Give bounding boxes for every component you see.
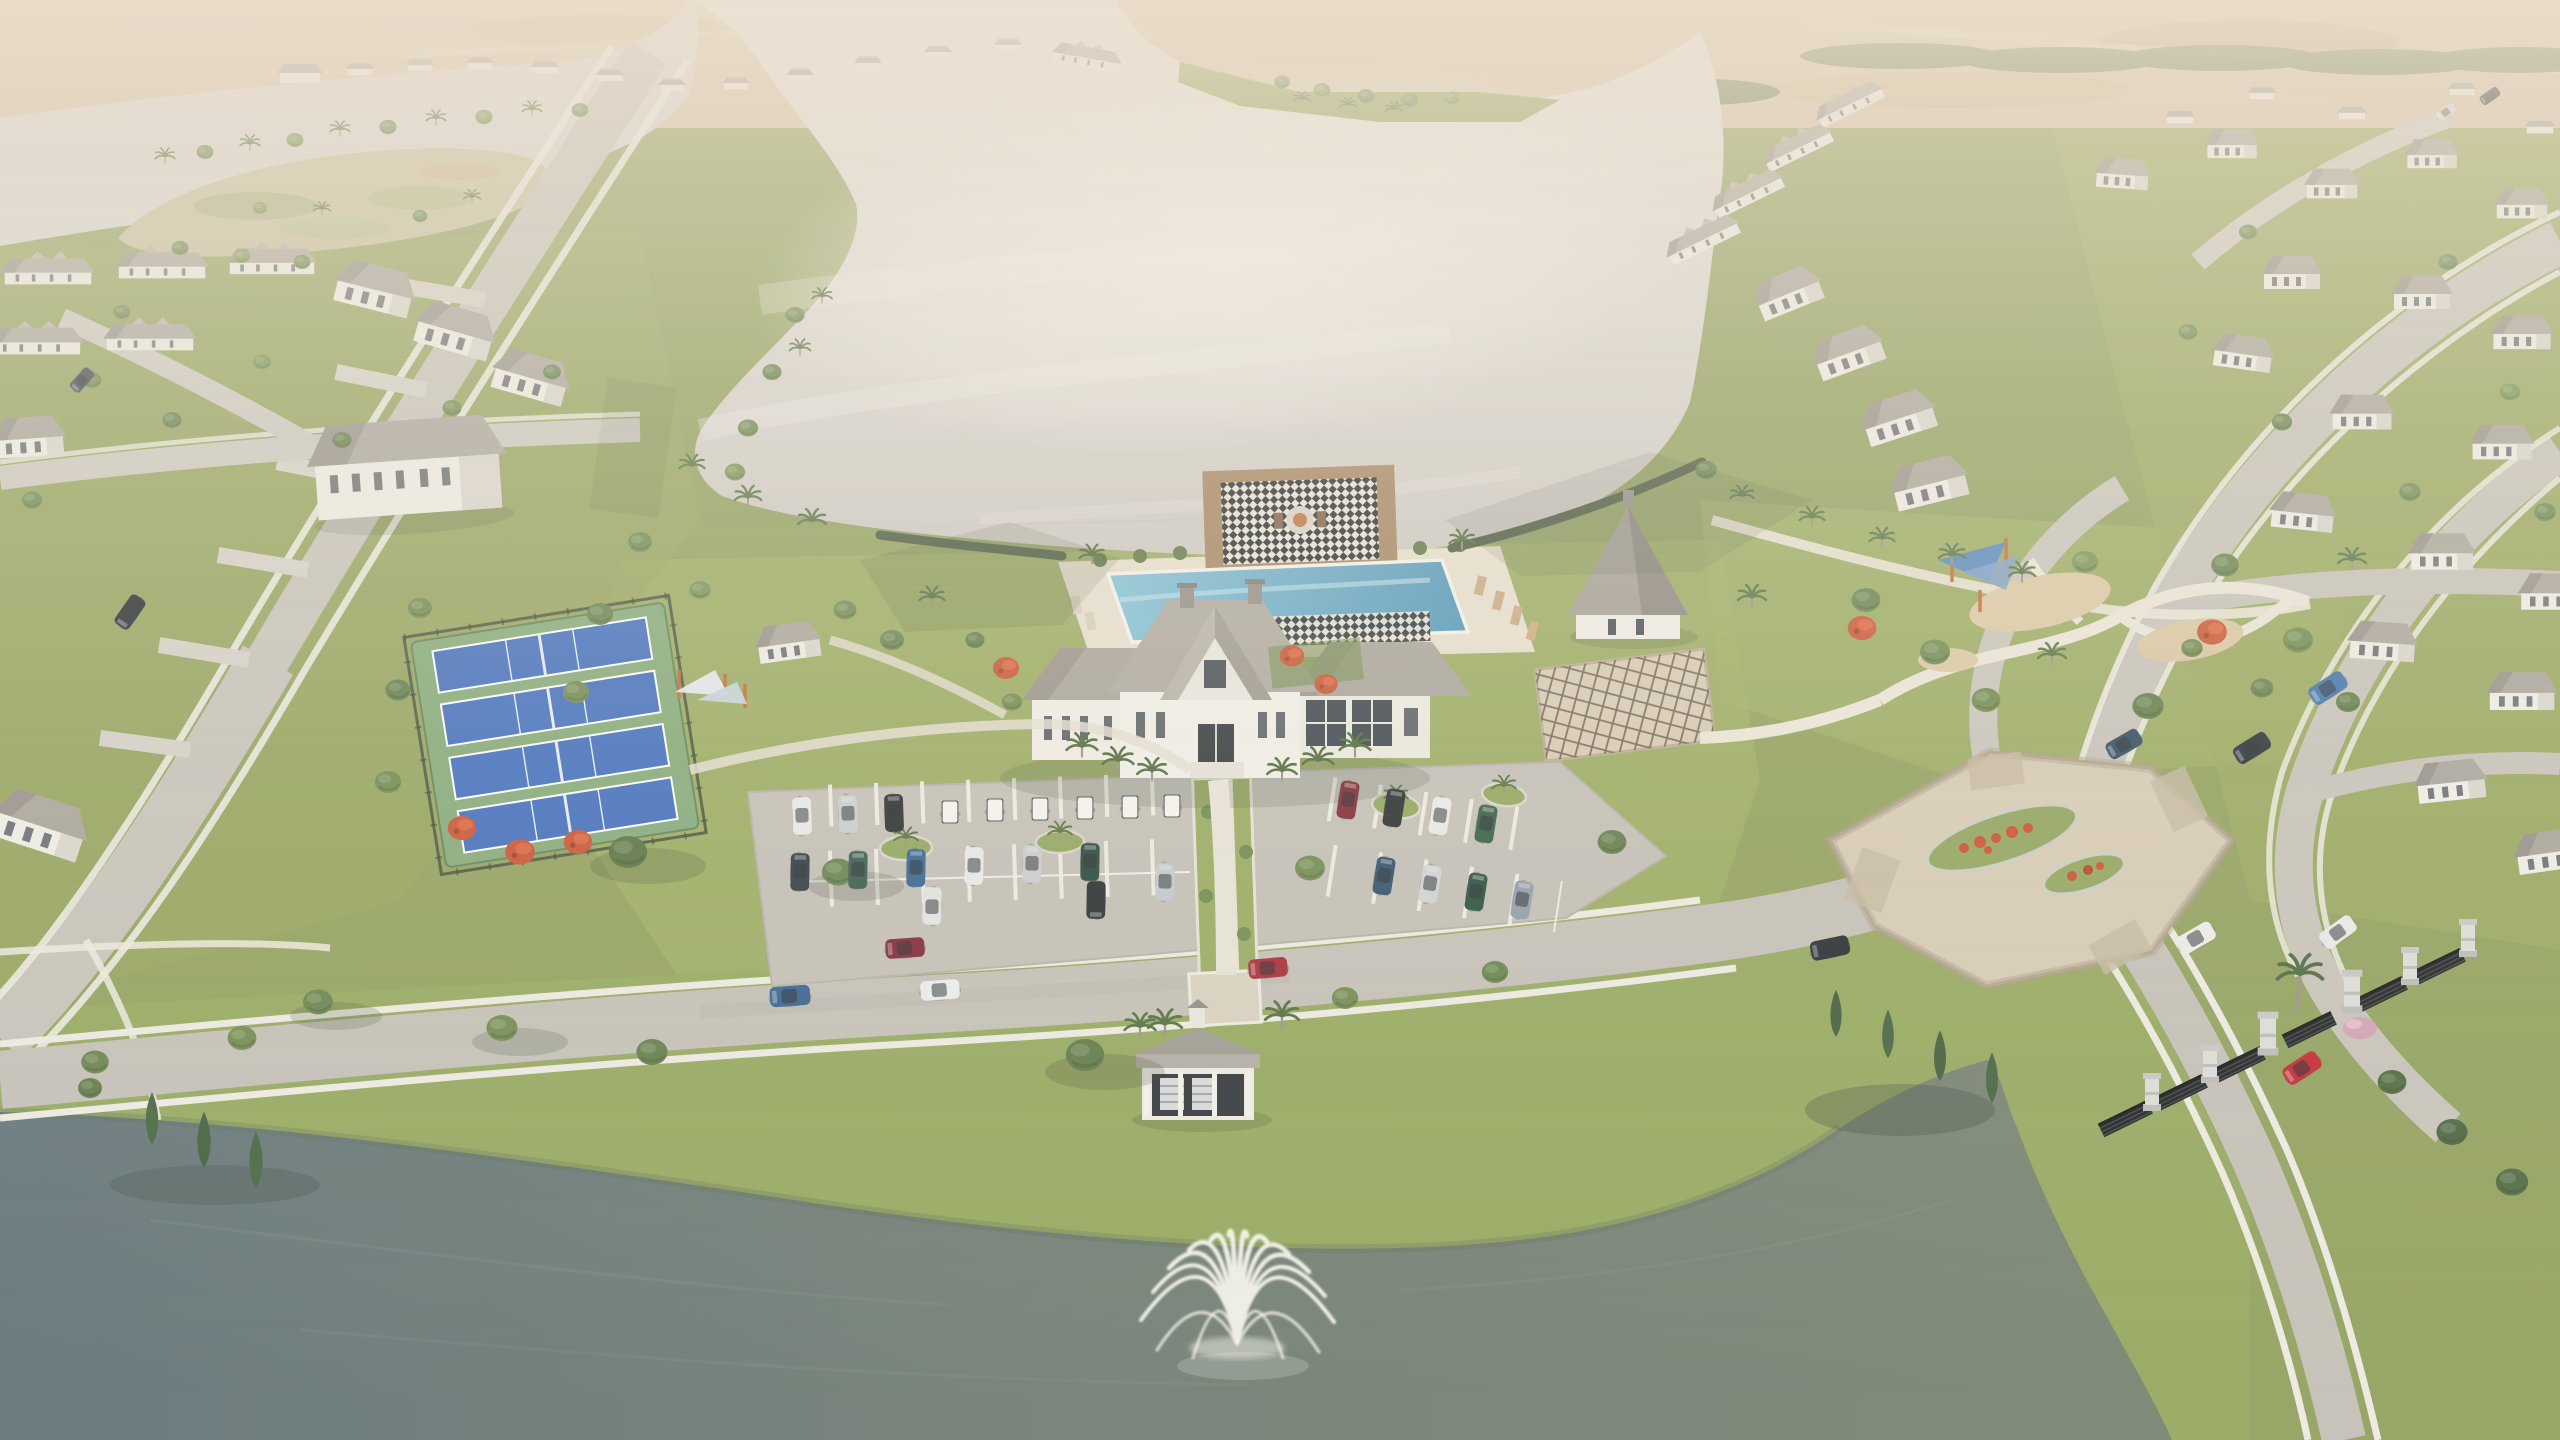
scene-canvas: [0, 0, 2560, 1440]
veil-overlay: [0, 0, 2560, 1440]
aerial-rendering: [0, 0, 2560, 1440]
